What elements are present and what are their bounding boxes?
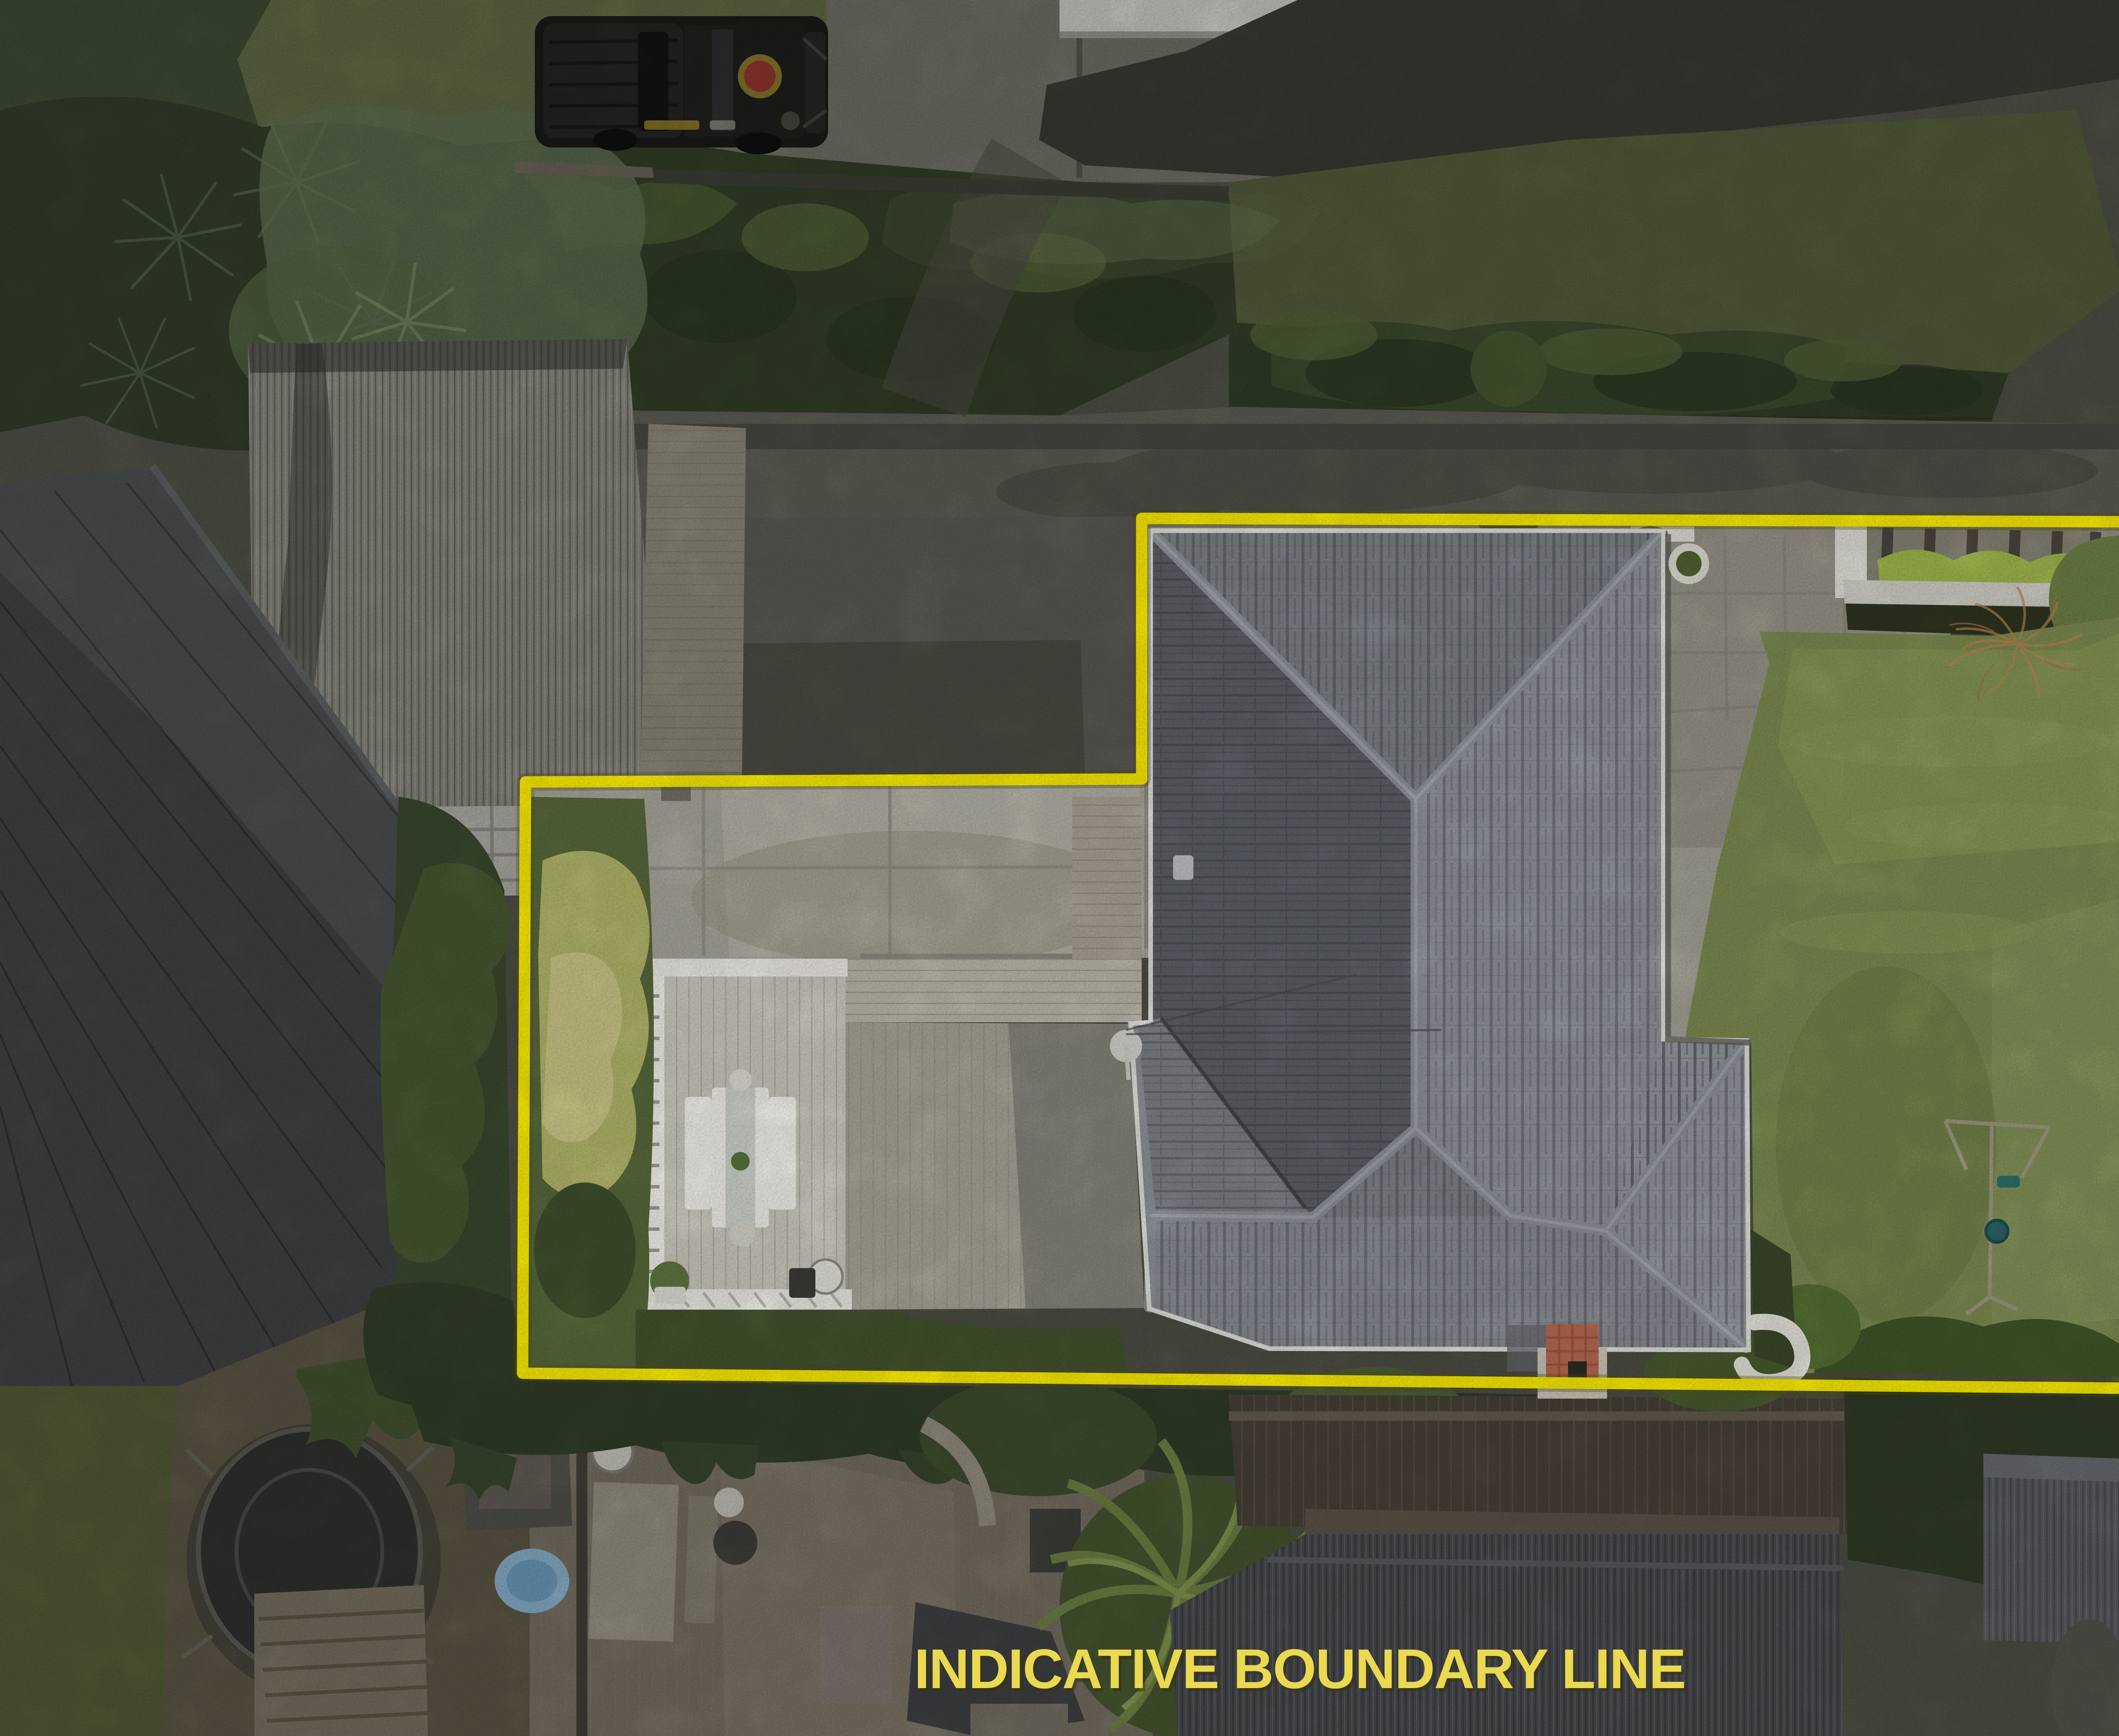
svg-text:INDICATIVE BOUNDARY LINE: INDICATIVE BOUNDARY LINE — [914, 1638, 1685, 1700]
